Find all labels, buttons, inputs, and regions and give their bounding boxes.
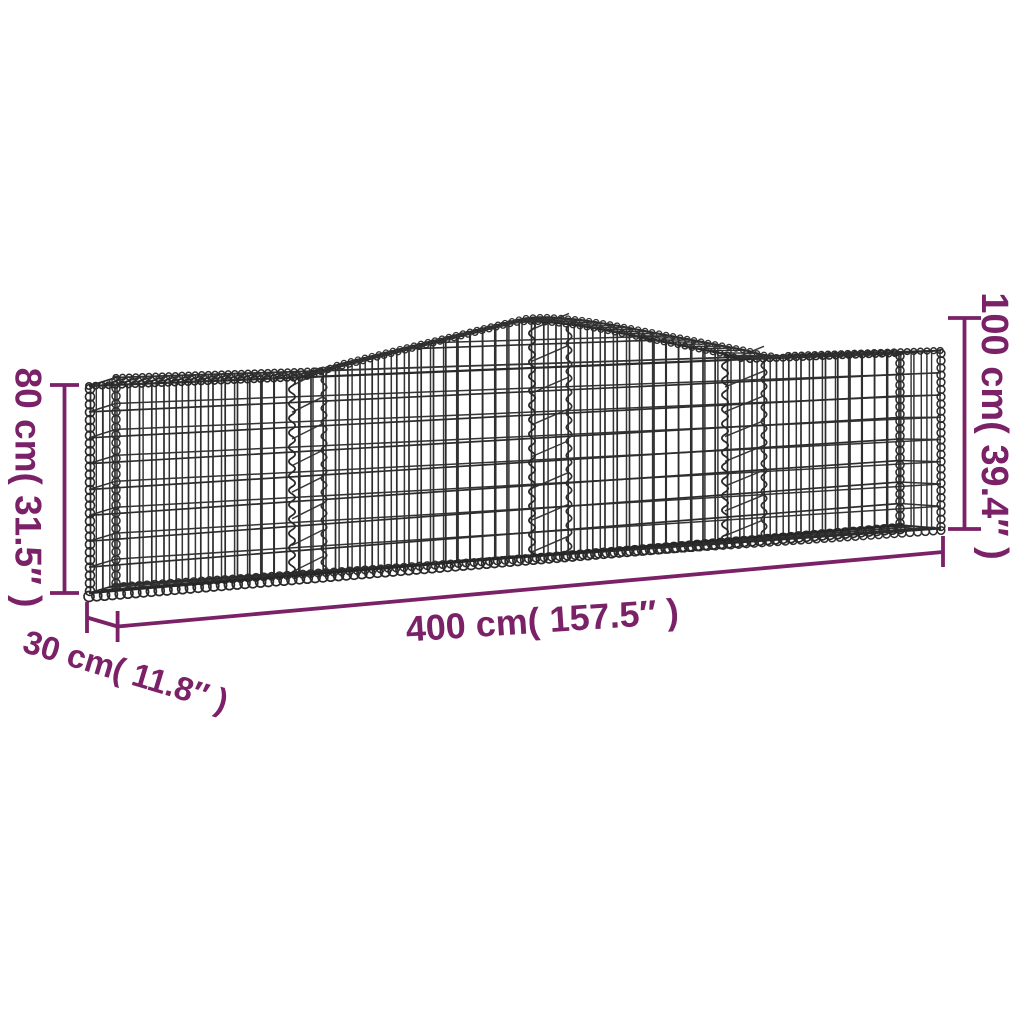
- svg-text:400 cm( 157.5″ ): 400 cm( 157.5″ ): [404, 591, 680, 650]
- svg-text:80 cm( 31.5″ ): 80 cm( 31.5″ ): [8, 368, 49, 608]
- svg-text:100 cm( 39.4″ ): 100 cm( 39.4″ ): [973, 292, 1015, 559]
- svg-text:30 cm( 11.8″ ): 30 cm( 11.8″ ): [19, 623, 233, 720]
